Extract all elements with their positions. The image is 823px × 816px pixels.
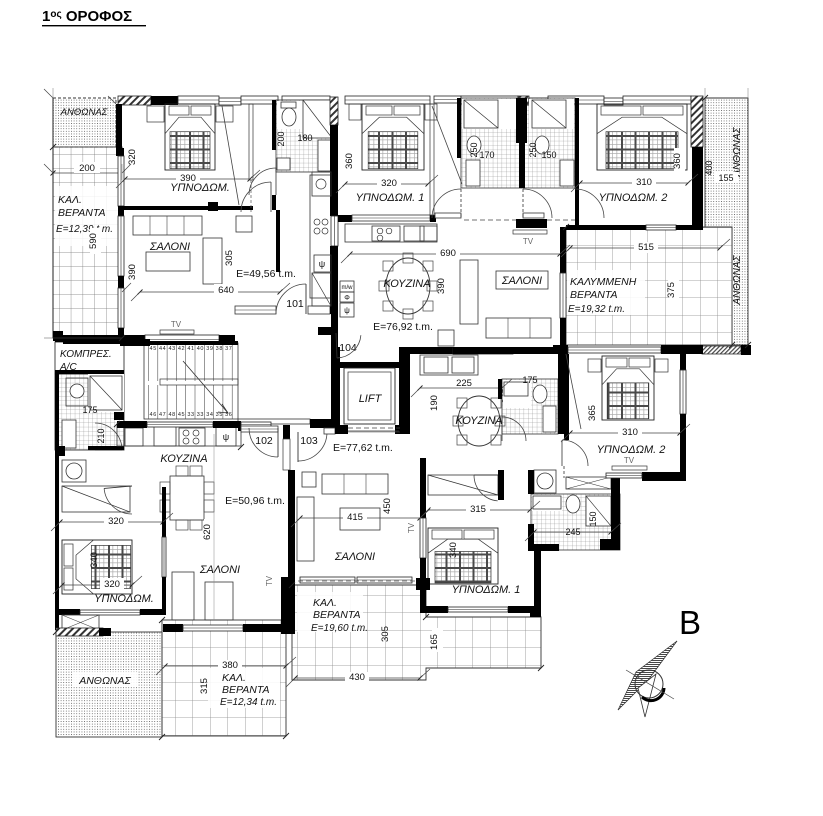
svg-text:ΒΕΡΑΝΤΑ: ΒΕΡΑΝΤΑ [58,207,105,219]
svg-text:ΚΟΥΖΙΝΑ: ΚΟΥΖΙΝΑ [383,278,430,290]
svg-text:E=12,34 t.m.: E=12,34 t.m. [220,697,277,708]
svg-text:103: 103 [300,435,318,447]
svg-text:TV: TV [171,320,182,329]
svg-text:ΥΠΝΟΔΩΜ.: ΥΠΝΟΔΩΜ. [94,593,154,605]
svg-text:170: 170 [479,150,494,160]
svg-text:590: 590 [88,233,99,249]
svg-text:305: 305 [380,626,391,642]
svg-text:415: 415 [347,512,363,523]
svg-text:ΥΠΝΟΔΩΜ. 2: ΥΠΝΟΔΩΜ. 2 [599,192,668,204]
svg-text:210: 210 [96,428,106,443]
svg-text:175: 175 [82,405,97,415]
svg-text:m/w: m/w [342,285,354,291]
svg-text:320: 320 [381,178,397,189]
svg-text:245: 245 [565,527,580,537]
svg-text:315: 315 [199,678,210,694]
svg-text:E=76,92 t.m.: E=76,92 t.m. [373,321,433,333]
svg-text:ΑΝΘΩΝΑΣ: ΑΝΘΩΝΑΣ [732,254,743,305]
svg-text:155: 155 [718,173,733,183]
svg-text:ΒΕΡΑΝΤΑ: ΒΕΡΑΝΤΑ [313,609,360,621]
svg-text:ΥΠΝΟΔΩΜ. 1: ΥΠΝΟΔΩΜ. 1 [356,192,425,204]
svg-text:ΚΟΥΖΙΝΑ: ΚΟΥΖΙΝΑ [455,415,502,427]
svg-text:620: 620 [202,524,213,540]
svg-text:ψ: ψ [319,259,325,269]
svg-text:340: 340 [89,552,100,568]
svg-text:TV: TV [407,522,416,533]
svg-text:310: 310 [636,177,652,188]
svg-text:LIFT: LIFT [359,393,383,405]
svg-text:315: 315 [470,504,486,515]
svg-text:175: 175 [522,375,537,385]
svg-text:E=49,56 t.m.: E=49,56 t.m. [236,268,296,280]
svg-text:101: 101 [286,298,304,310]
svg-text:430: 430 [349,672,365,683]
svg-text:E=50,96 t.m.: E=50,96 t.m. [225,495,285,507]
svg-text:360: 360 [344,153,355,169]
svg-text:400: 400 [704,160,714,175]
svg-text:365: 365 [587,405,598,421]
svg-text:ΥΠΝΟΔΩΜ. 1: ΥΠΝΟΔΩΜ. 1 [452,584,521,596]
svg-text:165: 165 [429,634,440,650]
svg-text:515: 515 [638,242,654,253]
svg-text:ΚΑΛ.: ΚΑΛ. [222,672,246,684]
svg-text:225: 225 [456,378,472,389]
svg-text:200: 200 [276,131,286,146]
svg-text:ΒΕΡΑΝΤΑ: ΒΕΡΑΝΤΑ [570,289,617,301]
svg-text:380: 380 [222,660,238,671]
svg-text:TV: TV [523,237,534,246]
svg-text:E=77,62 t.m.: E=77,62 t.m. [333,442,393,454]
svg-text:320: 320 [108,516,124,527]
svg-text:ΣΑΛΟΝΙ: ΣΑΛΟΝΙ [149,241,190,253]
svg-text:B: B [679,604,701,641]
svg-text:E=12,39 t.m.: E=12,39 t.m. [56,224,113,235]
svg-text:ΑΝΘΩΝΑΣ: ΑΝΘΩΝΑΣ [60,107,108,118]
svg-text:ΚΑΛ.: ΚΑΛ. [58,194,82,206]
svg-text:200: 200 [79,163,95,174]
svg-text:TV: TV [265,575,274,586]
svg-text:ΚΟΥΖΙΝΑ: ΚΟΥΖΙΝΑ [160,453,207,465]
svg-text:320: 320 [104,579,120,590]
svg-text:ΣΑΛΟΝΙ: ΣΑΛΟΝΙ [334,551,375,563]
svg-text:ΒΕΡΑΝΤΑ: ΒΕΡΑΝΤΑ [222,684,269,696]
svg-text:ΚΑΛ.: ΚΑΛ. [313,597,337,609]
svg-text:ΑΝΘΩΝΑΣ: ΑΝΘΩΝΑΣ [78,675,131,687]
svg-text:ψ: ψ [344,306,350,315]
svg-text:ΚΟΜΠΡΕΣ.: ΚΟΜΠΡΕΣ. [60,349,112,360]
svg-text:TV: TV [624,456,635,465]
svg-text:ΚΑΛΥΜΜΕΝΗ: ΚΑΛΥΜΜΕΝΗ [570,276,637,288]
svg-text:360: 360 [672,153,683,169]
svg-text:ψ: ψ [223,432,229,442]
svg-text:390: 390 [436,278,447,294]
svg-text:ΑΝΘΩΝΑΣ: ΑΝΘΩΝΑΣ [732,126,743,177]
svg-text:640: 640 [218,285,234,296]
svg-text:102: 102 [255,435,273,447]
svg-text:690: 690 [440,248,456,259]
svg-text:104: 104 [339,342,357,354]
svg-text:250: 250 [528,142,538,157]
svg-text:180: 180 [297,133,312,143]
svg-text:ΣΑΛΟΝΙ: ΣΑΛΟΝΙ [199,564,240,576]
svg-text:375: 375 [666,282,677,298]
svg-text:150: 150 [541,150,556,160]
svg-text:Φ: Φ [344,295,350,302]
svg-text:390: 390 [180,173,196,184]
svg-text:250: 250 [469,142,479,157]
svg-text:450: 450 [382,498,393,514]
svg-text:150: 150 [588,511,598,526]
svg-text:E=19,60 t.m.: E=19,60 t.m. [311,623,368,634]
svg-text:E=19,32 t.m.: E=19,32 t.m. [568,304,625,315]
svg-text:310: 310 [622,427,638,438]
svg-text:45 44 43 42 41 40 39 38 37: 45 44 43 42 41 40 39 38 37 [150,346,233,352]
svg-text:46 47 48 45 33 33 34 35 36: 46 47 48 45 33 33 34 35 36 [150,412,233,418]
svg-text:305: 305 [224,250,235,266]
svg-text:ΥΠΝΟΔΩΜ. 2: ΥΠΝΟΔΩΜ. 2 [597,444,666,456]
svg-text:320: 320 [127,149,138,165]
svg-text:ΣΑΛΟΝΙ: ΣΑΛΟΝΙ [501,275,542,287]
svg-text:190: 190 [429,395,440,411]
svg-text:340: 340 [448,542,459,558]
svg-text:390: 390 [127,264,138,280]
